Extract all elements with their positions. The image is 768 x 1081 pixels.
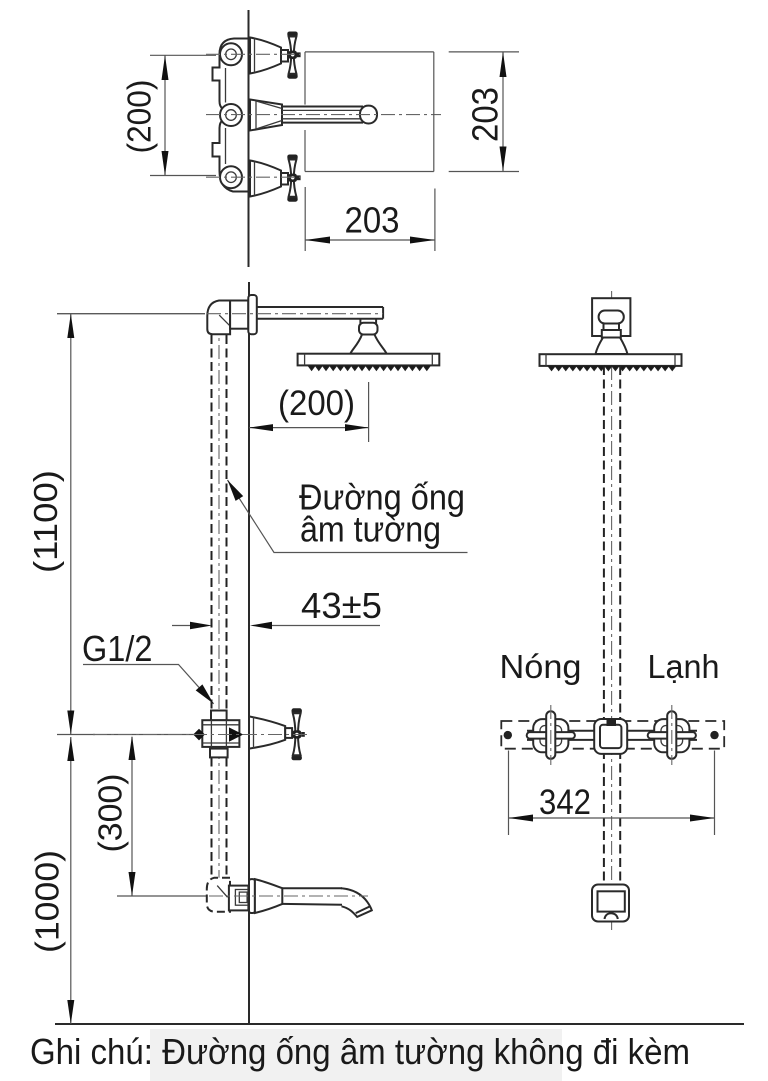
svg-text:Lạnh: Lạnh [648,648,720,685]
svg-text:(200): (200) [121,80,158,154]
svg-text:âm tường: âm tường [300,509,441,550]
svg-text:(200): (200) [278,384,355,423]
svg-text:Ghi chú: Đường ống âm tường kh: Ghi chú: Đường ống âm tường không đi kèm [30,1031,690,1072]
svg-text:203: 203 [465,87,506,142]
svg-text:43±5: 43±5 [301,585,382,626]
svg-text:(300): (300) [92,774,129,853]
svg-text:G1/2: G1/2 [82,628,152,669]
svg-text:(1100): (1100) [27,470,64,573]
svg-text:203: 203 [345,200,400,241]
svg-text:Nóng: Nóng [500,648,582,685]
svg-text:342: 342 [539,783,591,822]
svg-text:(1000): (1000) [29,850,66,953]
